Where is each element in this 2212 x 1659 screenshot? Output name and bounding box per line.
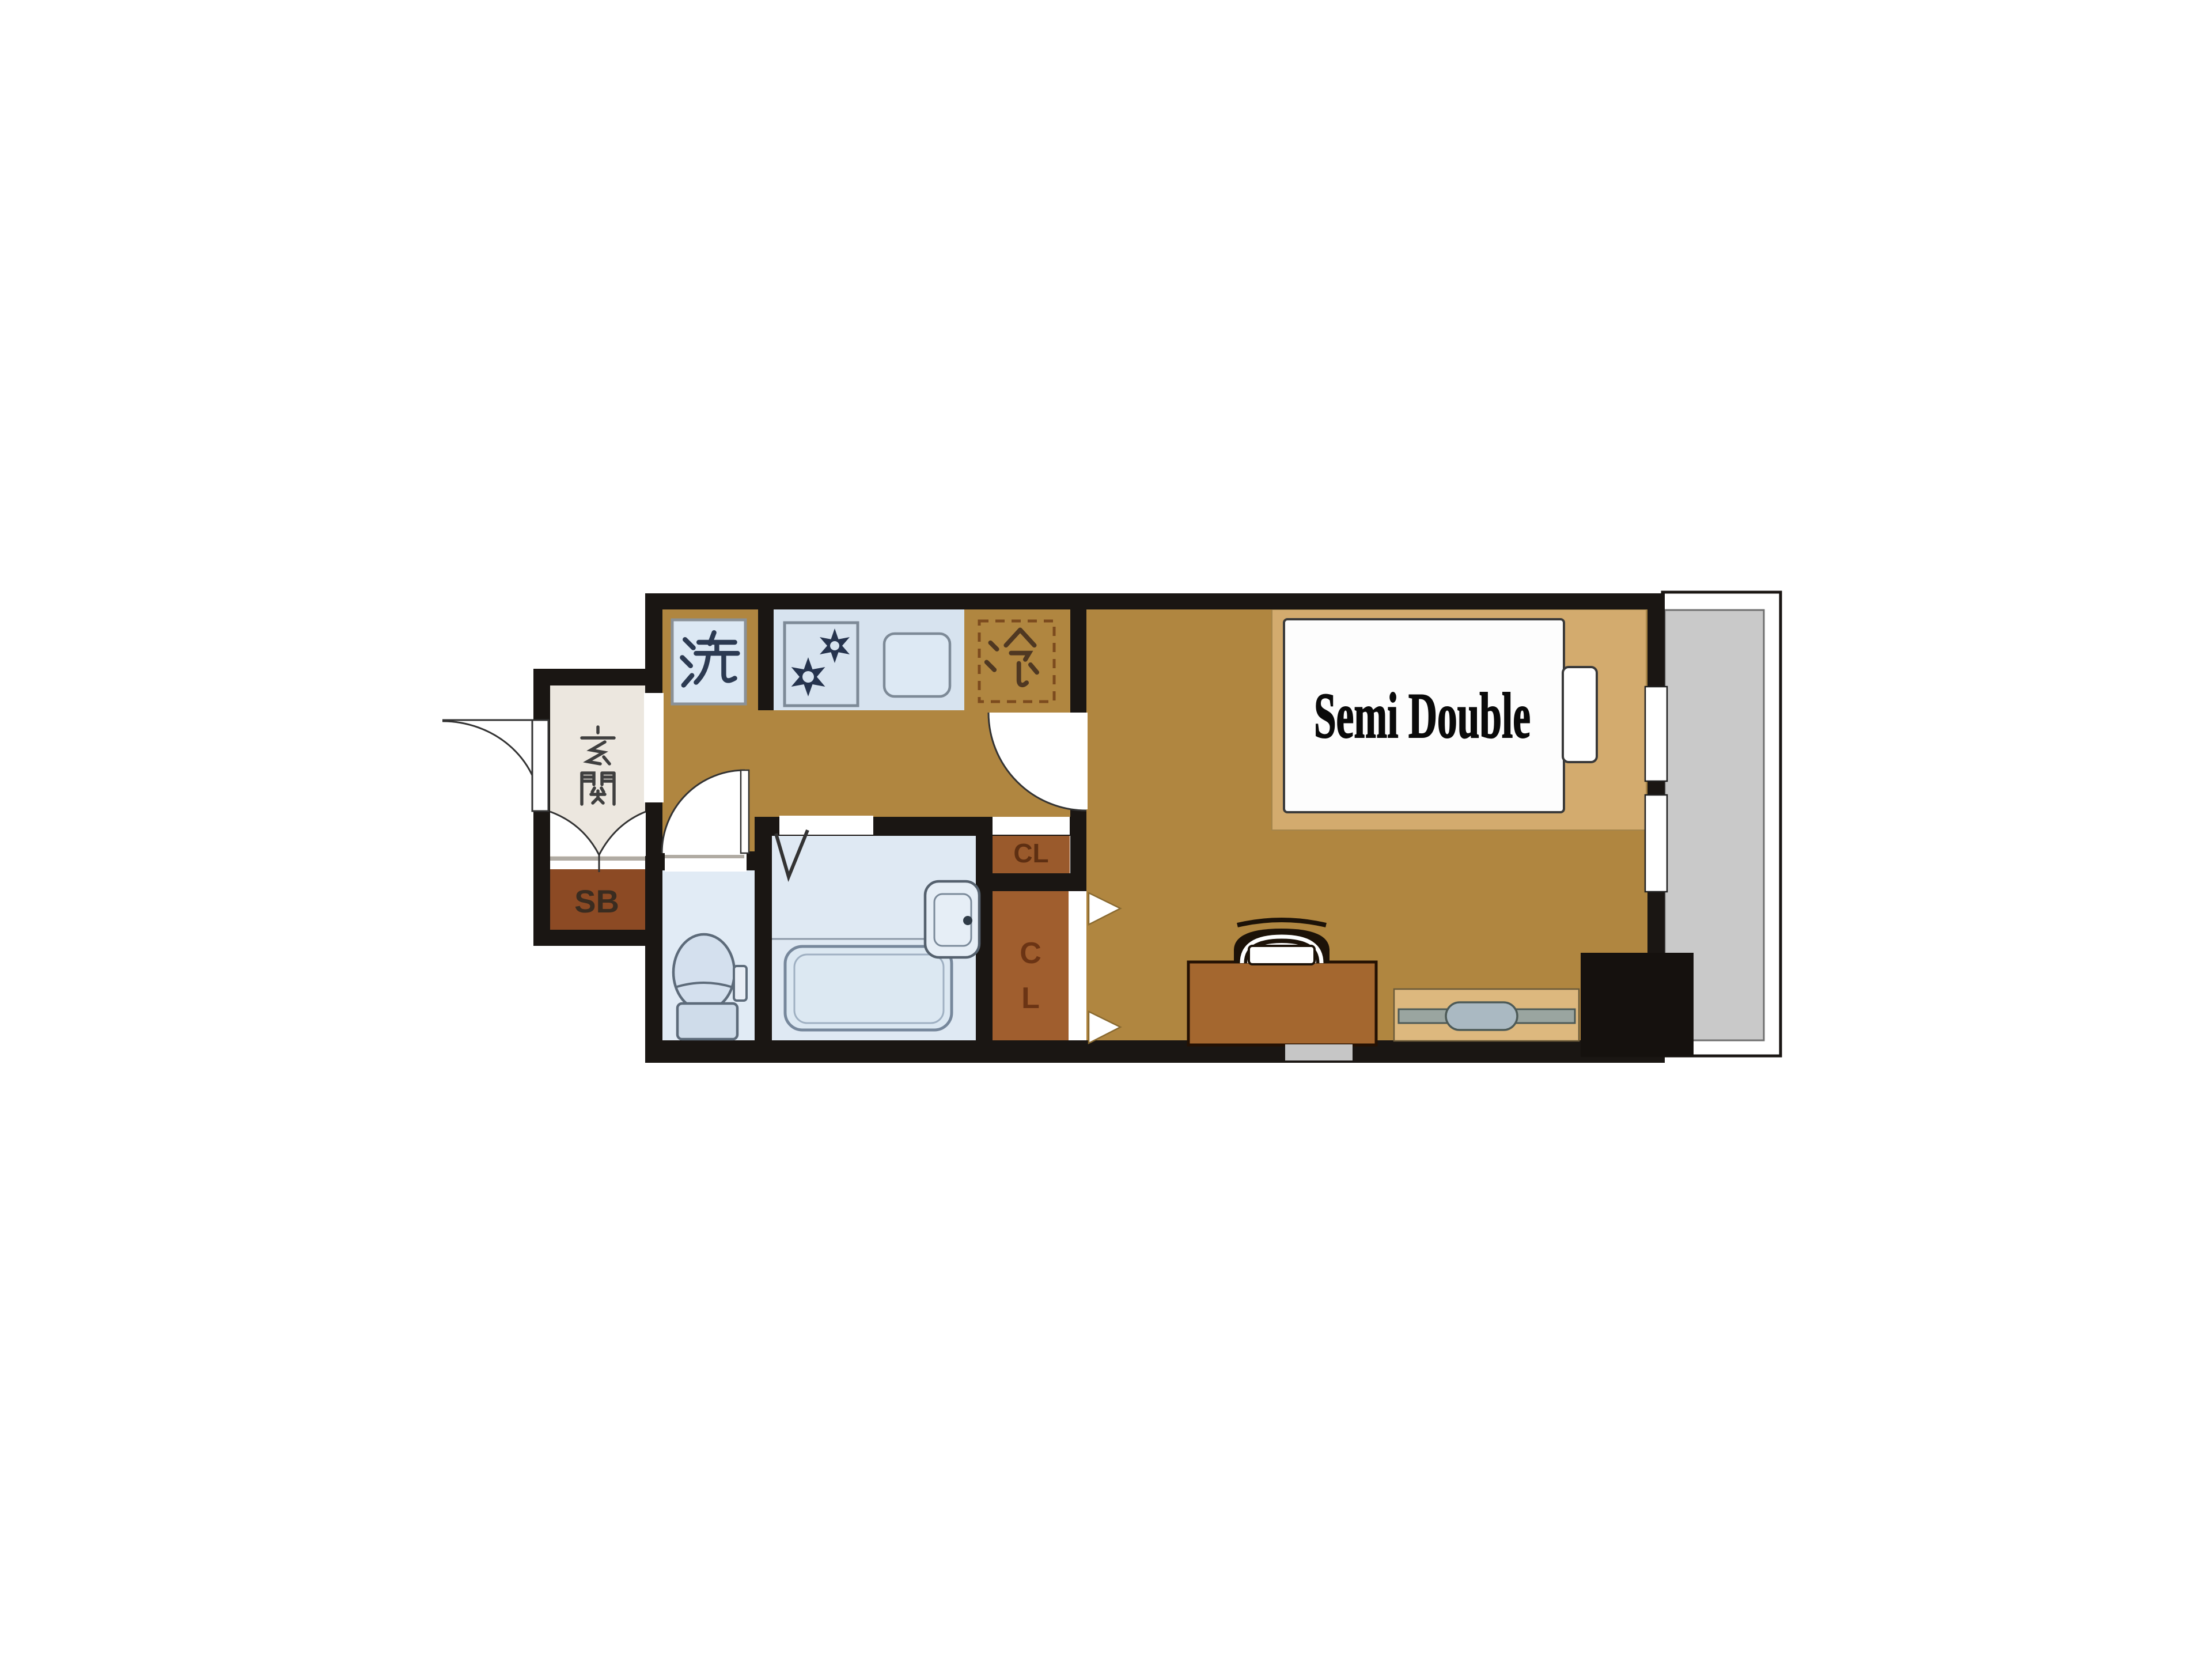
svg-text:L: L: [1021, 982, 1040, 1015]
svg-text:Semi Double: Semi Double: [1314, 680, 1531, 752]
svg-text:CL: CL: [1013, 838, 1048, 868]
svg-text:C: C: [1020, 937, 1041, 970]
svg-text:SB: SB: [574, 883, 619, 919]
